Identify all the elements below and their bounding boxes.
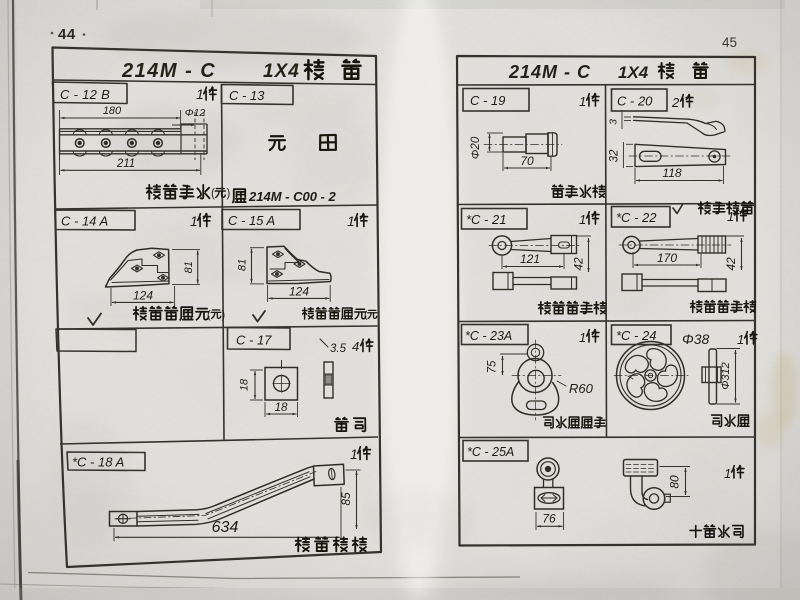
svg-text:C - 17: C - 17 [236, 333, 272, 348]
svg-text:C - 13: C - 13 [229, 88, 265, 103]
svg-text:C - 12 B: C - 12 B [60, 87, 110, 102]
svg-text:44: 44 [58, 26, 76, 43]
svg-text:42: 42 [724, 257, 738, 271]
svg-text:211: 211 [116, 158, 135, 170]
svg-text:(: ( [211, 188, 215, 200]
svg-text:180: 180 [103, 105, 122, 117]
svg-text:76: 76 [542, 512, 556, 526]
svg-text:214M - C00 - 2: 214M - C00 - 2 [248, 189, 336, 204]
svg-text:80: 80 [668, 475, 682, 489]
svg-text:3: 3 [608, 119, 620, 125]
svg-text:124: 124 [289, 285, 309, 299]
svg-text:121: 121 [520, 252, 540, 266]
svg-text:1: 1 [190, 213, 198, 229]
svg-text:(: ( [207, 309, 211, 321]
svg-text:18: 18 [275, 402, 288, 414]
svg-text:2: 2 [671, 95, 680, 110]
svg-text:634: 634 [212, 519, 239, 536]
svg-text:81: 81 [236, 259, 248, 271]
svg-text:C - 15 A: C - 15 A [228, 213, 275, 228]
svg-text:R60: R60 [569, 381, 594, 396]
svg-text:*C - 18 A: *C - 18 A [72, 455, 124, 470]
svg-text:45: 45 [722, 35, 737, 50]
svg-text:1: 1 [737, 332, 744, 347]
svg-text:75: 75 [487, 360, 499, 373]
svg-text:*C - 22: *C - 22 [616, 210, 657, 225]
svg-text:*C - 21: *C - 21 [466, 212, 506, 227]
svg-text:1: 1 [350, 446, 358, 462]
svg-text:): ) [222, 309, 226, 321]
svg-text:Φ12: Φ12 [185, 107, 206, 119]
svg-text:3.5: 3.5 [330, 343, 347, 355]
svg-text:42: 42 [572, 257, 586, 271]
svg-text:1: 1 [724, 466, 731, 481]
svg-text:*C - 23A: *C - 23A [465, 329, 512, 343]
svg-text:18: 18 [239, 378, 251, 391]
svg-text:C - 14 A: C - 14 A [61, 214, 108, 229]
svg-text:1: 1 [579, 212, 586, 227]
svg-text:170: 170 [657, 251, 677, 265]
svg-text:*C - 25A: *C - 25A [467, 445, 514, 459]
svg-text:1: 1 [579, 94, 586, 109]
svg-text:1: 1 [579, 330, 586, 345]
svg-text:32: 32 [609, 149, 621, 162]
svg-text:4: 4 [352, 339, 359, 354]
svg-text:Φ38: Φ38 [682, 331, 710, 347]
svg-text:124: 124 [133, 289, 153, 303]
svg-text:214M - C: 214M - C [508, 62, 591, 82]
svg-text:1X4: 1X4 [263, 61, 300, 82]
svg-text:70: 70 [520, 154, 534, 168]
svg-text:*C - 24: *C - 24 [616, 328, 656, 343]
svg-text:): ) [227, 188, 231, 200]
svg-text:81: 81 [183, 261, 195, 273]
svg-text:Φ20: Φ20 [470, 136, 482, 159]
svg-text:Φ312: Φ312 [720, 362, 732, 390]
svg-text:C - 19: C - 19 [470, 93, 505, 108]
svg-text:(: ( [364, 309, 368, 321]
svg-text:C - 20: C - 20 [617, 94, 653, 109]
svg-text:1X4: 1X4 [618, 63, 649, 82]
svg-text:1: 1 [727, 209, 734, 224]
svg-text:118: 118 [662, 166, 681, 180]
svg-text:214M - C: 214M - C [121, 60, 216, 82]
svg-text:1: 1 [347, 213, 355, 229]
svg-text:1: 1 [196, 86, 204, 102]
svg-text:85: 85 [339, 492, 353, 506]
